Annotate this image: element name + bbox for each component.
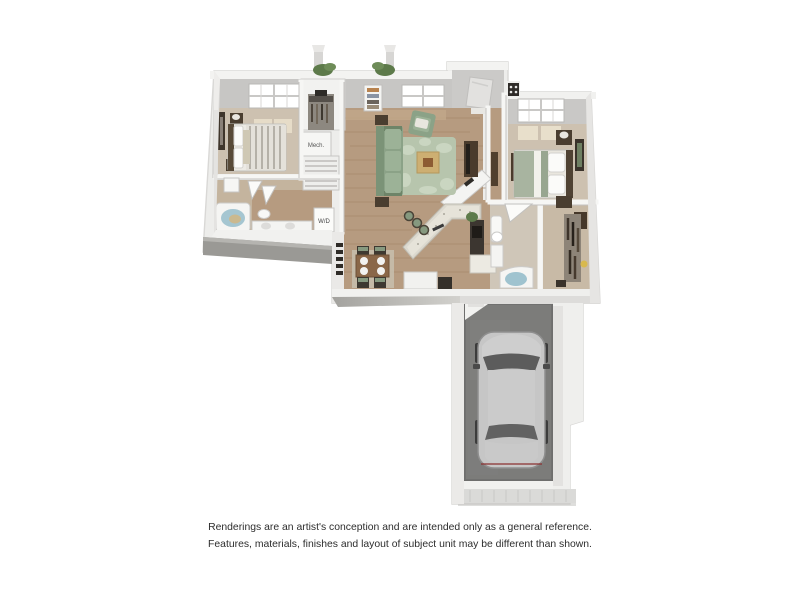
svg-text:W/D: W/D bbox=[318, 219, 330, 225]
svg-text:Mech.: Mech. bbox=[308, 143, 325, 149]
